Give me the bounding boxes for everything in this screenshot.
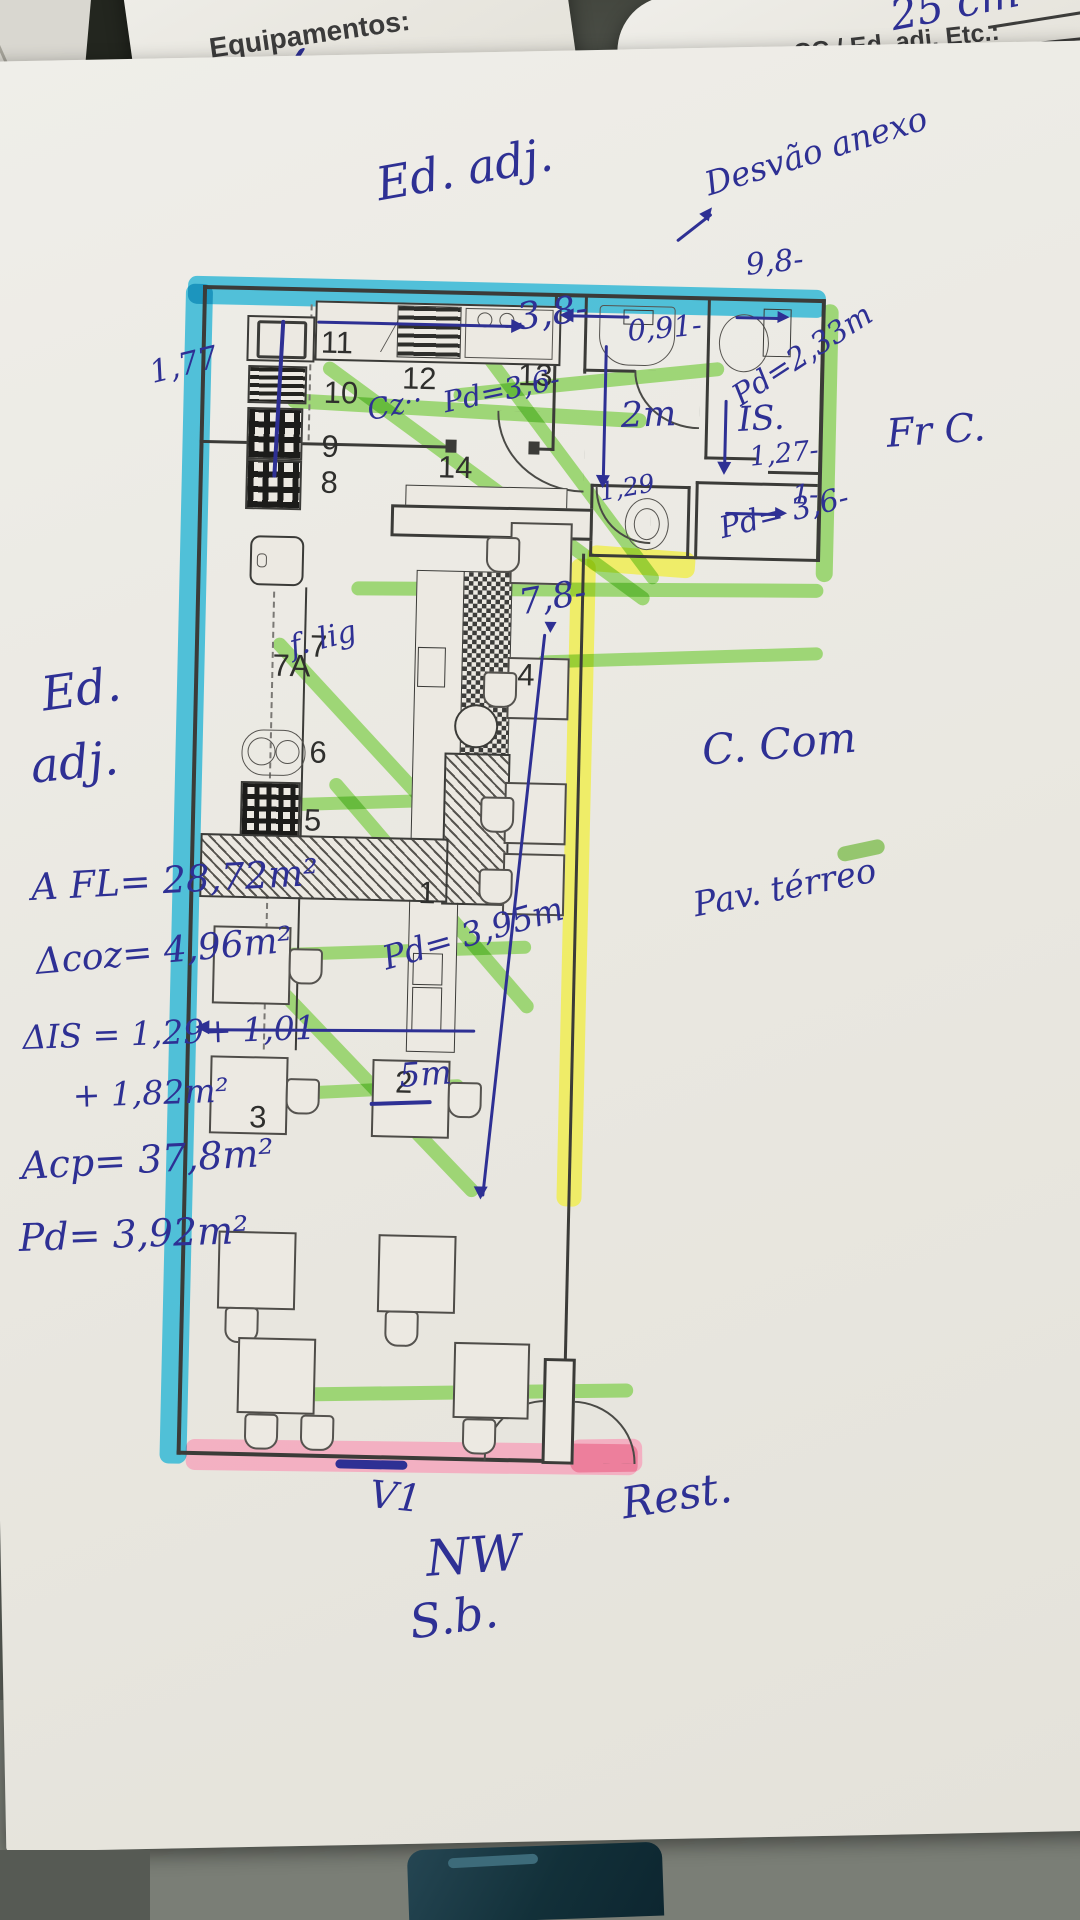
island-small-unit [417,647,446,688]
room-number-6: 6 [309,734,327,770]
annotation-area-is-2: + 1,82m² [72,1071,229,1115]
room-number-11: 11 [320,325,353,362]
table [452,1342,530,1420]
annotation-ed-left-2: adj. [28,731,121,795]
arrow-down-icon [473,1186,487,1199]
table [237,1337,317,1415]
chair [483,671,518,708]
chair [288,948,323,985]
annotation-ed-left-1: Ed. [38,657,124,723]
wall-segment [704,456,756,460]
door-arc [496,411,586,493]
arrow-down-icon [717,462,731,475]
annotation-dim-98: 9,8- [744,242,805,283]
entrance-door-leaf [541,1358,575,1465]
chair [285,1078,320,1115]
island-small-unit [411,987,442,1032]
annotation-nw: NW [424,1523,523,1587]
room-number-9: 9 [321,429,339,465]
table [377,1234,457,1314]
chair [486,536,521,573]
room-number-10: 10 [323,375,358,412]
photo-of-annotated-floor-plan: Equipamentos: Elevador ✓ Rede de G nteri… [0,0,1080,1920]
wall-segment [686,486,691,558]
chair [244,1413,279,1450]
room-number-8: 8 [320,465,338,501]
chair [462,1418,497,1455]
v1-tick-mark [335,1459,407,1470]
annotation-v1: V1 [367,1472,423,1521]
chair [384,1310,419,1347]
wall-segment [704,299,711,459]
arrow-right-icon [777,311,789,323]
shadow-bottom-left [0,1850,150,1920]
entrance-door-arc-right [571,1401,636,1464]
room-number-3: 3 [249,1099,267,1135]
annotation-dim-5m: 5m [398,1052,453,1095]
annotation-is-room: IS. [737,398,785,440]
chair [478,868,513,905]
room-number-14: 14 [438,449,473,486]
wall-segment [583,369,635,373]
chair [300,1414,335,1451]
wall-segment [768,471,818,475]
counter-striped-unit [397,305,462,358]
dark-object-bottom [407,1842,664,1920]
room-number-4: 4 [517,657,535,693]
room-number-1: 1 [418,875,436,911]
annotation-fr-c: Fr C. [885,405,987,457]
fridge-handle [257,553,267,567]
annotation-dim-2m: 2m [620,394,677,436]
chair [480,796,515,833]
wall-segment [694,481,699,559]
arrow-down-icon [544,622,556,633]
room-number-5: 5 [304,802,322,838]
annotation-dim-091: 0,91- [626,308,703,348]
annotation-pd-392: Pd= 3,92m² [18,1208,249,1260]
